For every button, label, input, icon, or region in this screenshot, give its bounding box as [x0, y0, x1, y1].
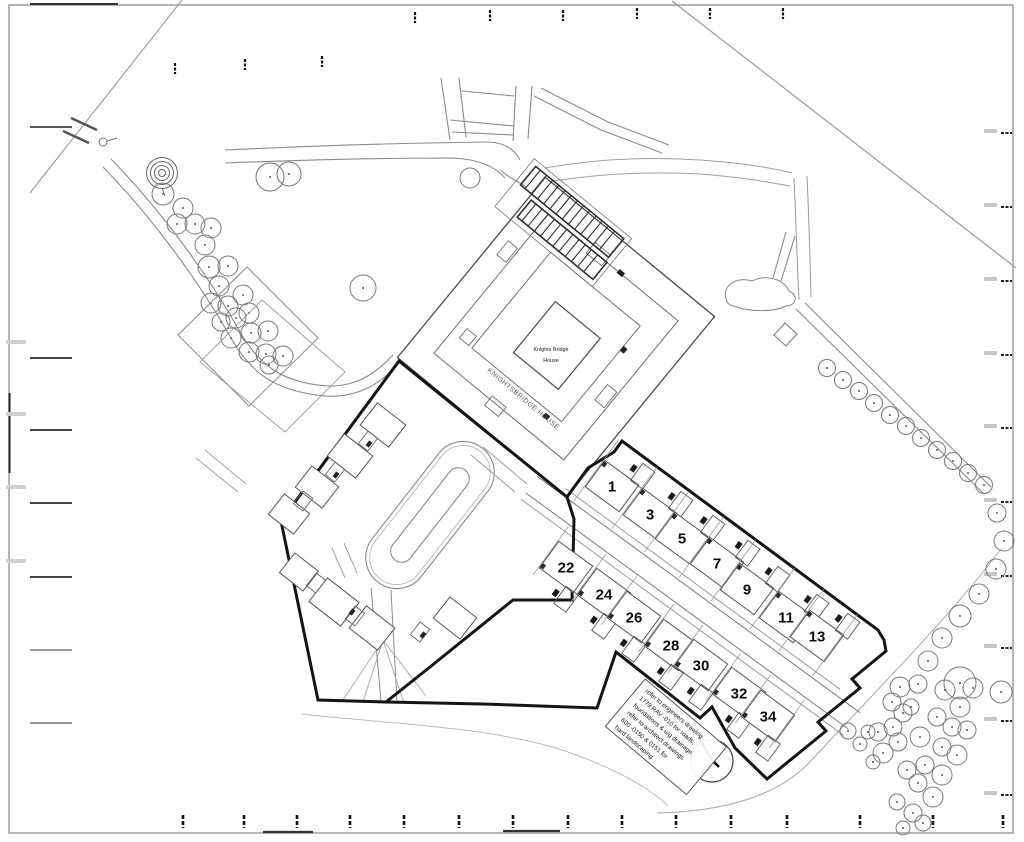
plot-number-label: 26: [626, 609, 643, 626]
tree-center-dot: [250, 332, 252, 334]
house-outline: [327, 434, 373, 478]
gate-mark: [71, 118, 97, 130]
tree-center-dot: [905, 425, 907, 427]
tree-center-dot: [826, 367, 828, 369]
boundary-jog: [386, 497, 574, 702]
bold-mark: [420, 631, 427, 638]
tree-center-dot: [235, 317, 237, 319]
tree-center-dot: [873, 402, 875, 404]
road-edge: [332, 548, 345, 578]
tree-center-dot: [220, 321, 222, 323]
tree-center-dot: [944, 689, 946, 691]
road-edge: [807, 176, 811, 297]
tree-center-dot: [362, 287, 364, 289]
road-edge: [545, 158, 792, 173]
knightsbridge-house-label-line2: House: [543, 358, 559, 364]
grid-tick-label-smudge: [984, 351, 997, 355]
survey-target-symbol: [147, 158, 178, 189]
engineers-note-annotation: refer to engineers drawing 1779 RAV -010…: [605, 679, 726, 795]
kb-porch: [485, 396, 507, 417]
tree-center-dot: [956, 754, 958, 756]
gate-post-arrow: [107, 138, 117, 141]
tree-center-dot: [995, 568, 997, 570]
plot-number-label: 34: [760, 708, 777, 725]
knightsbridge-house-label-line1: Knights Bridge: [533, 347, 568, 353]
roads: [103, 78, 1001, 813]
tree-center-dot: [917, 782, 919, 784]
grid-tick-label-smudge: [6, 485, 26, 489]
tree-center-dot: [859, 743, 861, 745]
road-edge: [391, 590, 397, 702]
tree-center-dot: [922, 822, 924, 824]
tree-center-dot: [912, 812, 914, 814]
gate-post-symbol: [99, 138, 107, 146]
kb-garage-surround: [495, 159, 632, 287]
tree-center-dot: [242, 294, 244, 296]
house-outline: [360, 403, 406, 447]
gate-mark: [63, 131, 89, 143]
tree-center-dot: [941, 774, 943, 776]
tree-center-dot: [892, 726, 894, 728]
grid-tick-label-smudge: [984, 277, 997, 281]
kb-porch: [497, 241, 518, 263]
plot-number-label: 1: [608, 478, 616, 495]
loop-road-kerb: [359, 435, 501, 596]
road-edge: [225, 142, 489, 150]
tree-center-dot: [1000, 691, 1002, 693]
kb-terrace-outline: [472, 252, 640, 421]
plot-number-label: 22: [558, 559, 575, 576]
tree-center-dot: [941, 637, 943, 639]
tree-center-dot: [204, 244, 206, 246]
tree-center-dot: [867, 731, 869, 733]
pond-outline: [725, 278, 795, 311]
tree-center-dot: [182, 207, 184, 209]
plot-number-label: 3: [646, 506, 654, 523]
tree-center-dot: [902, 827, 904, 829]
tree-center-dot: [842, 379, 844, 381]
road-edge: [205, 450, 246, 484]
tree-center-dot: [218, 285, 220, 287]
tree-center-dot: [983, 484, 985, 486]
grid-tick-label-smudge: [984, 203, 997, 207]
static-labels: KNIGHTSBRIDGE HOUSE Knights Bridge House…: [486, 347, 727, 795]
survey-target-symbol: [155, 166, 170, 181]
kb-outer-outline: [397, 177, 714, 496]
tree-center-dot: [858, 390, 860, 392]
tree-center-dot: [896, 801, 898, 803]
road-edge: [344, 543, 357, 573]
grid-tick-label-smudge: [984, 129, 997, 133]
tree-center-dot: [936, 449, 938, 451]
survey-target-symbol: [151, 162, 174, 185]
plot-number-label: 9: [743, 581, 751, 598]
road-edge: [513, 86, 516, 141]
road-edge: [196, 458, 238, 492]
tree-center-dot: [924, 764, 926, 766]
grid-tick-label-smudge: [6, 340, 26, 344]
tree-center-dot: [959, 682, 961, 684]
loop-road-island: [386, 463, 474, 566]
road-edge: [553, 173, 790, 186]
tree-center-dot: [941, 746, 943, 748]
tree-center-dot: [208, 266, 210, 268]
plot-number-label: 32: [731, 685, 748, 702]
survey-target-symbol: [159, 170, 166, 177]
house-outline: [309, 578, 359, 626]
tree-center-dot: [265, 353, 267, 355]
tree-area-plot: [200, 300, 345, 432]
grid-tick-label-smudge: [984, 572, 997, 576]
utility-marker-diamond: [774, 323, 797, 346]
tree-center-dot: [897, 741, 899, 743]
tree-center-dot: [891, 701, 893, 703]
tree-center-dot: [176, 223, 178, 225]
grid-tick-label-smudge: [984, 644, 997, 648]
tree-center-dot: [268, 364, 270, 366]
grid-tick-label-smudge: [984, 717, 997, 721]
road-edge: [528, 86, 532, 139]
tree-center-dot: [227, 305, 229, 307]
tree-center-dot: [959, 615, 961, 617]
house-outline: [268, 494, 309, 534]
road-island: [460, 168, 480, 188]
road-edge: [489, 142, 520, 160]
site-boundary-lines: [30, 0, 1016, 268]
tree-center-dot: [889, 414, 891, 416]
road-edge: [534, 96, 662, 153]
site-plan-sheet: 13579111322242628303234 KNIGHTSBRIDGE HO…: [0, 0, 1024, 842]
garage-outline: [410, 622, 429, 642]
kb-garage-strip: [517, 200, 607, 279]
knightsbridge-house-block: [382, 159, 720, 497]
tree-center-dot: [847, 730, 849, 732]
tree-center-dot: [906, 769, 908, 771]
tree-center-dot: [927, 660, 929, 662]
road-edge: [805, 303, 991, 487]
road-edge: [794, 178, 799, 300]
tree-center-dot: [210, 227, 212, 229]
plot-number-label: 24: [596, 586, 613, 603]
site-plan-drawing: 13579111322242628303234 KNIGHTSBRIDGE HO…: [0, 0, 1024, 842]
kb-porch: [459, 329, 476, 346]
tree-center-dot: [882, 752, 884, 754]
kb-porch: [595, 385, 617, 408]
road-edge: [462, 91, 514, 96]
footpath: [383, 640, 404, 703]
grid-tick-label-smudge: [6, 412, 26, 416]
tree-center-dot: [877, 731, 879, 733]
tree-center-dot: [899, 686, 901, 688]
road-edge: [459, 78, 466, 137]
tree-center-dot: [267, 330, 269, 332]
grid-tick-label-smudge: [984, 498, 997, 502]
road-edge: [452, 132, 513, 135]
tree-center-dot: [269, 176, 271, 178]
grid-tick-label-smudge: [984, 424, 997, 428]
plots-north-row: 135791113: [574, 439, 860, 675]
tree-center-dot: [996, 512, 998, 514]
tree-center-dot: [227, 265, 229, 267]
tree-center-dot: [951, 726, 953, 728]
tree-center-dot: [288, 173, 290, 175]
tree-center-dot: [919, 736, 921, 738]
plot-number-label: 13: [809, 628, 826, 645]
tree-center-dot: [902, 712, 904, 714]
road-edge: [796, 309, 984, 494]
road-edge: [471, 455, 515, 492]
frame-border: [9, 5, 1013, 833]
trees: [147, 158, 1015, 836]
sheet-frame: [9, 4, 1013, 833]
kb-garage-strip: [520, 166, 623, 257]
plot-number-label: 11: [778, 609, 794, 626]
tree-area-plot: [178, 267, 318, 406]
tree-center-dot: [978, 593, 980, 595]
grid-tick-label-smudge: [6, 559, 26, 563]
kb-house-outline: [513, 302, 600, 390]
tree-center-dot: [248, 351, 250, 353]
tree-center-dot: [952, 460, 954, 462]
plot-number-label: 7: [713, 555, 721, 572]
tree-center-dot: [917, 683, 919, 685]
road-edge: [450, 120, 514, 126]
house-outline: [349, 606, 395, 650]
kb-bold-mark: [620, 346, 628, 354]
tree-center-dot: [194, 223, 196, 225]
plot-number-label: 30: [693, 657, 710, 674]
plot-number-label: 5: [678, 530, 686, 547]
tree-center-dot: [932, 796, 934, 798]
tree-center-dot: [972, 687, 974, 689]
house-outline: [295, 466, 338, 508]
tree-center-dot: [966, 729, 968, 731]
road-edge: [441, 78, 450, 140]
site-boundary-line: [672, 1, 1016, 268]
tree-center-dot: [920, 437, 922, 439]
grid-tick-label-smudge: [984, 791, 997, 795]
house-outline: [279, 553, 318, 591]
tree-center-dot: [230, 337, 232, 339]
tree-center-dot: [967, 472, 969, 474]
tree-center-dot: [1003, 540, 1005, 542]
tree-center-dot: [959, 706, 961, 708]
road-edge: [225, 158, 505, 178]
road-edge: [541, 88, 669, 145]
tree-center-dot: [872, 761, 874, 763]
plot-number-label: 28: [663, 637, 680, 654]
site-boundary-line: [30, 0, 182, 193]
tree-center-dot: [936, 716, 938, 718]
tree-center-dot: [282, 355, 284, 357]
